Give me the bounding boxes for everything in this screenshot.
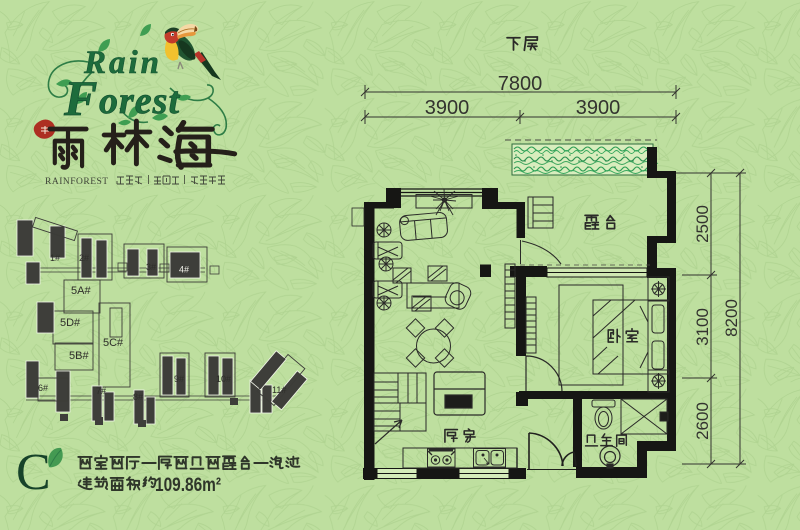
svg-text:2500: 2500 — [693, 205, 712, 243]
svg-text:10#: 10# — [216, 374, 231, 384]
svg-text:3900: 3900 — [576, 97, 621, 119]
svg-text:109.86m²: 109.86m² — [155, 474, 221, 496]
svg-text:3900: 3900 — [425, 97, 470, 119]
svg-text:5C#: 5C# — [103, 337, 124, 349]
svg-text:orest: orest — [99, 80, 180, 122]
svg-text:2#: 2# — [79, 253, 89, 263]
svg-text:2600: 2600 — [693, 402, 712, 440]
svg-text:1#: 1# — [50, 253, 60, 263]
svg-text:5D#: 5D# — [60, 317, 81, 329]
svg-text:C: C — [16, 444, 51, 501]
svg-text:7#: 7# — [96, 386, 106, 396]
svg-text:5B#: 5B# — [69, 350, 89, 362]
svg-text:3100: 3100 — [693, 308, 712, 346]
svg-text:8200: 8200 — [722, 299, 741, 337]
svg-text:8#: 8# — [133, 392, 143, 402]
svg-text:11#: 11# — [272, 385, 286, 395]
svg-text:6#: 6# — [38, 383, 48, 393]
svg-text:4#: 4# — [179, 265, 189, 275]
svg-text:7800: 7800 — [498, 73, 543, 95]
svg-text:5A#: 5A# — [71, 285, 91, 297]
svg-text:9#: 9# — [174, 374, 184, 384]
svg-text:3#: 3# — [146, 262, 156, 272]
svg-text:F: F — [63, 70, 98, 126]
svg-text:RAINFOREST: RAINFOREST — [45, 177, 109, 187]
